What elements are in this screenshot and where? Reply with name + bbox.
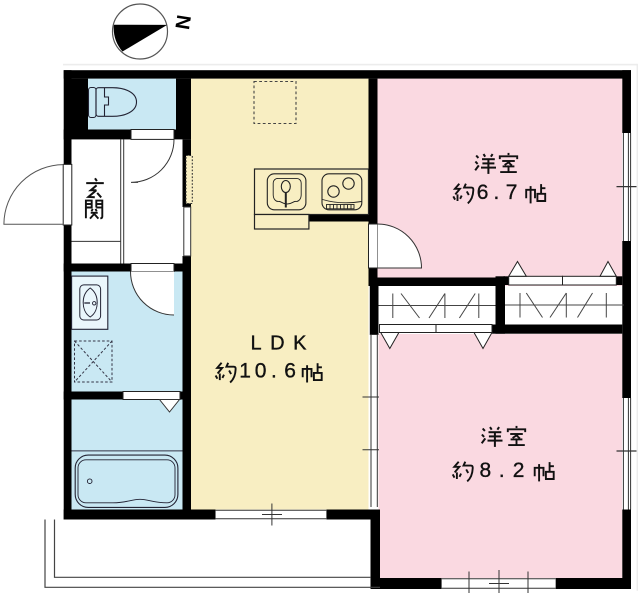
- svg-text:7: 7: [506, 181, 518, 204]
- svg-text:.: .: [499, 459, 505, 482]
- svg-text:6: 6: [284, 360, 296, 383]
- svg-text:1: 1: [239, 360, 251, 383]
- svg-text:.: .: [271, 360, 277, 383]
- svg-text:2: 2: [513, 459, 525, 482]
- svg-text:8: 8: [480, 459, 492, 482]
- svg-text:6: 6: [477, 181, 489, 204]
- svg-text:.: .: [494, 181, 500, 204]
- svg-text:0: 0: [255, 360, 267, 383]
- svg-text:LDK: LDK: [251, 333, 315, 355]
